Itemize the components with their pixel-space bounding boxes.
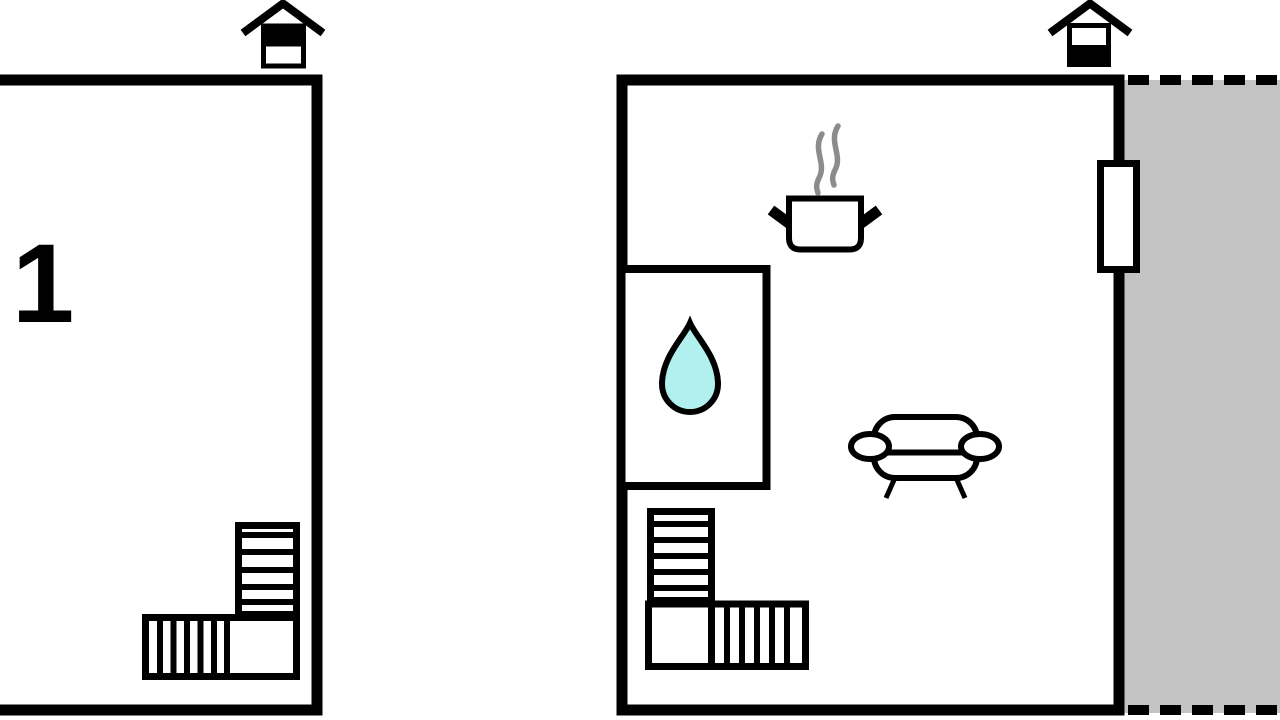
house-ground-level-icon xyxy=(1050,4,1130,68)
sofa-armrest-left xyxy=(851,434,889,459)
house-upper-half-filled xyxy=(261,24,306,47)
sofa-armrest-right xyxy=(961,434,999,459)
house-lower-half-filled xyxy=(1067,45,1111,67)
upper-floor-plan: 1 xyxy=(0,4,323,711)
room-label: 1 xyxy=(12,221,74,346)
terrace-area xyxy=(1121,80,1280,713)
stair-flight-horizontal xyxy=(146,618,297,677)
water-drop-room xyxy=(622,269,767,486)
floor-plan-svg: 1 xyxy=(0,0,1280,720)
house-upper-level-icon xyxy=(243,4,323,67)
terrace-floor xyxy=(1121,80,1280,713)
pot-body xyxy=(789,199,861,250)
window xyxy=(1101,164,1137,270)
floor-plan-canvas: 1 xyxy=(0,0,1280,720)
ground-floor-plan xyxy=(622,4,1280,714)
